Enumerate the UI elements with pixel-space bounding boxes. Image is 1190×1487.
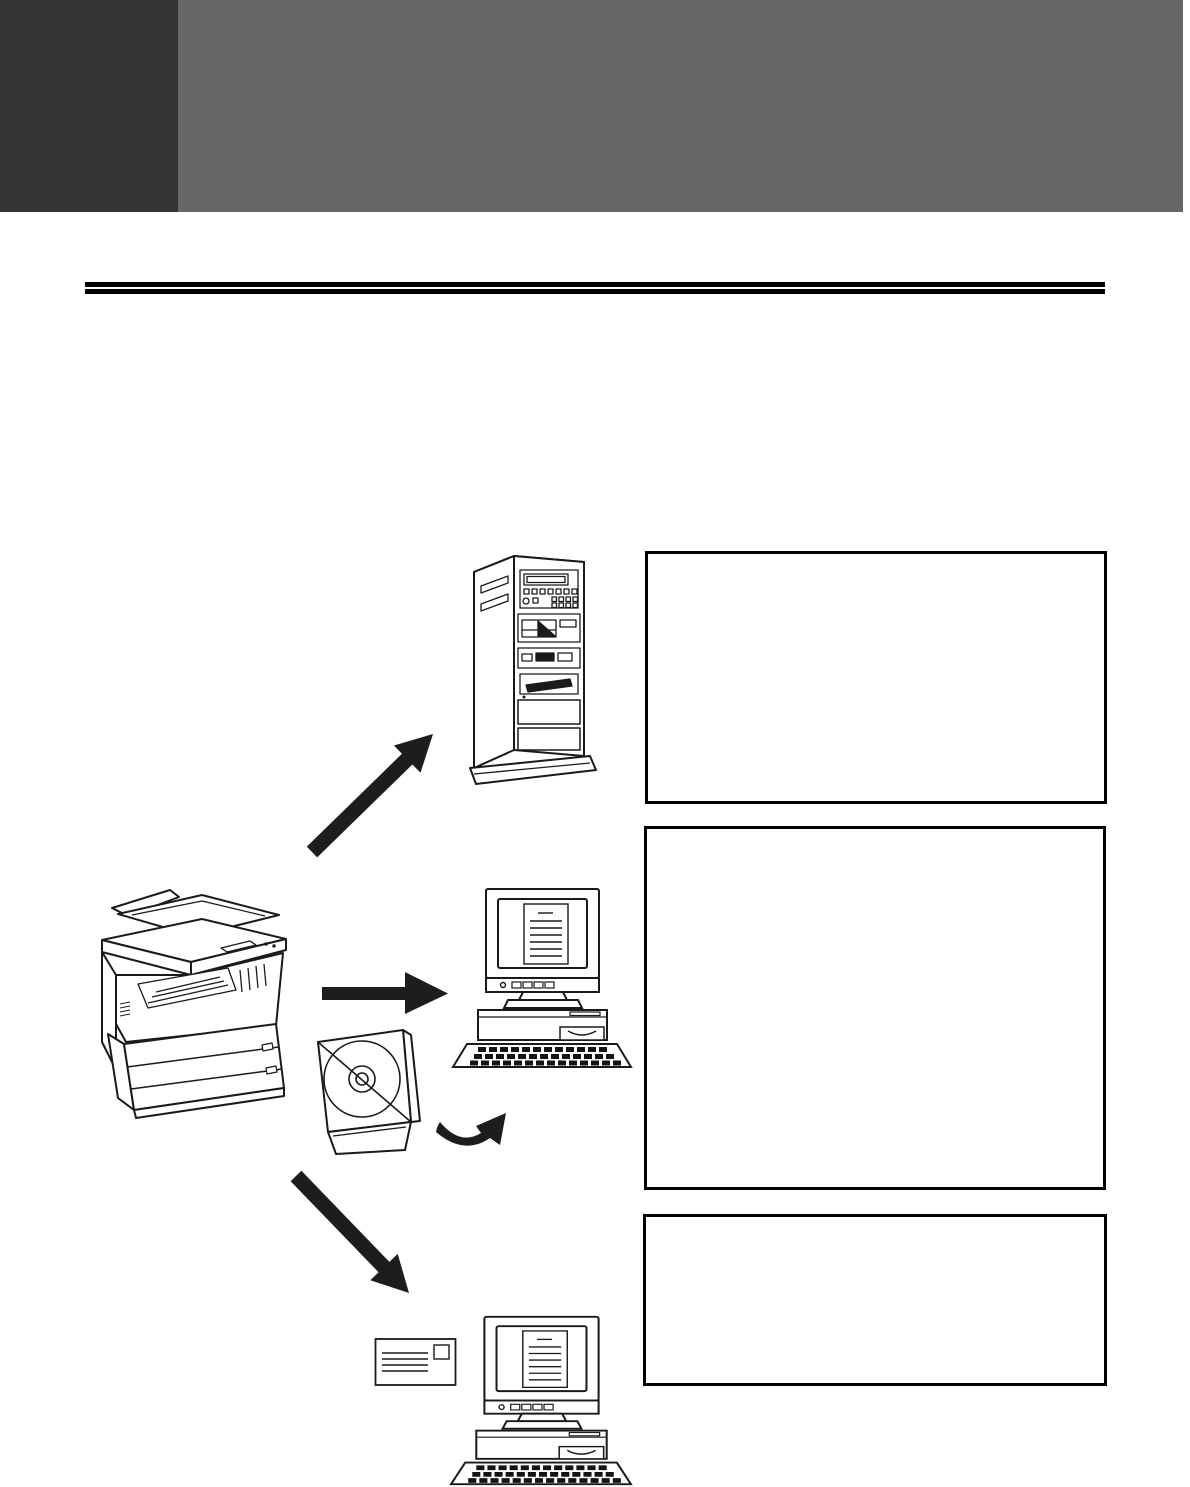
arrow-to-desktop-icon (320, 970, 450, 1016)
server-tape-drive (518, 614, 580, 642)
arrow-to-email-icon (288, 1168, 418, 1301)
title-rule-top (85, 282, 1105, 287)
copier-illustration (78, 884, 300, 1120)
envelope-stamp (434, 1345, 449, 1359)
server-floppy-drive (518, 648, 580, 668)
floppy-drive (560, 1027, 604, 1040)
monitor-base (503, 1421, 582, 1429)
floppy-drive (559, 1447, 603, 1459)
email-callout-box (643, 1214, 1107, 1386)
monitor-neck (519, 992, 567, 1000)
server-callout-box (645, 551, 1107, 804)
envelope-illustration (374, 1337, 458, 1389)
header-banner (178, 0, 1183, 212)
title-rule-bottom (85, 289, 1105, 294)
monitor-base (504, 1000, 582, 1008)
server-blank-panel (518, 700, 580, 724)
screen-document (524, 904, 568, 964)
arrow-cd-to-desktop-icon (436, 1100, 512, 1154)
arrow-to-server-icon (300, 726, 440, 859)
monitor-neck (518, 1414, 567, 1422)
power-led (501, 983, 506, 988)
server-blank-panel (518, 728, 580, 750)
desktop-computer-bottom-illustration (448, 1314, 635, 1487)
power-led (499, 1405, 504, 1410)
screen-document (523, 1331, 567, 1387)
desktop-computer-top-illustration (450, 886, 635, 1071)
server-control-panel (520, 570, 578, 608)
cd-case-illustration (306, 1024, 433, 1158)
server-tower-illustration (464, 544, 606, 786)
manual-page (0, 0, 1190, 1487)
header-dark-tab (0, 0, 178, 212)
desktop-callout-box (644, 826, 1106, 1190)
